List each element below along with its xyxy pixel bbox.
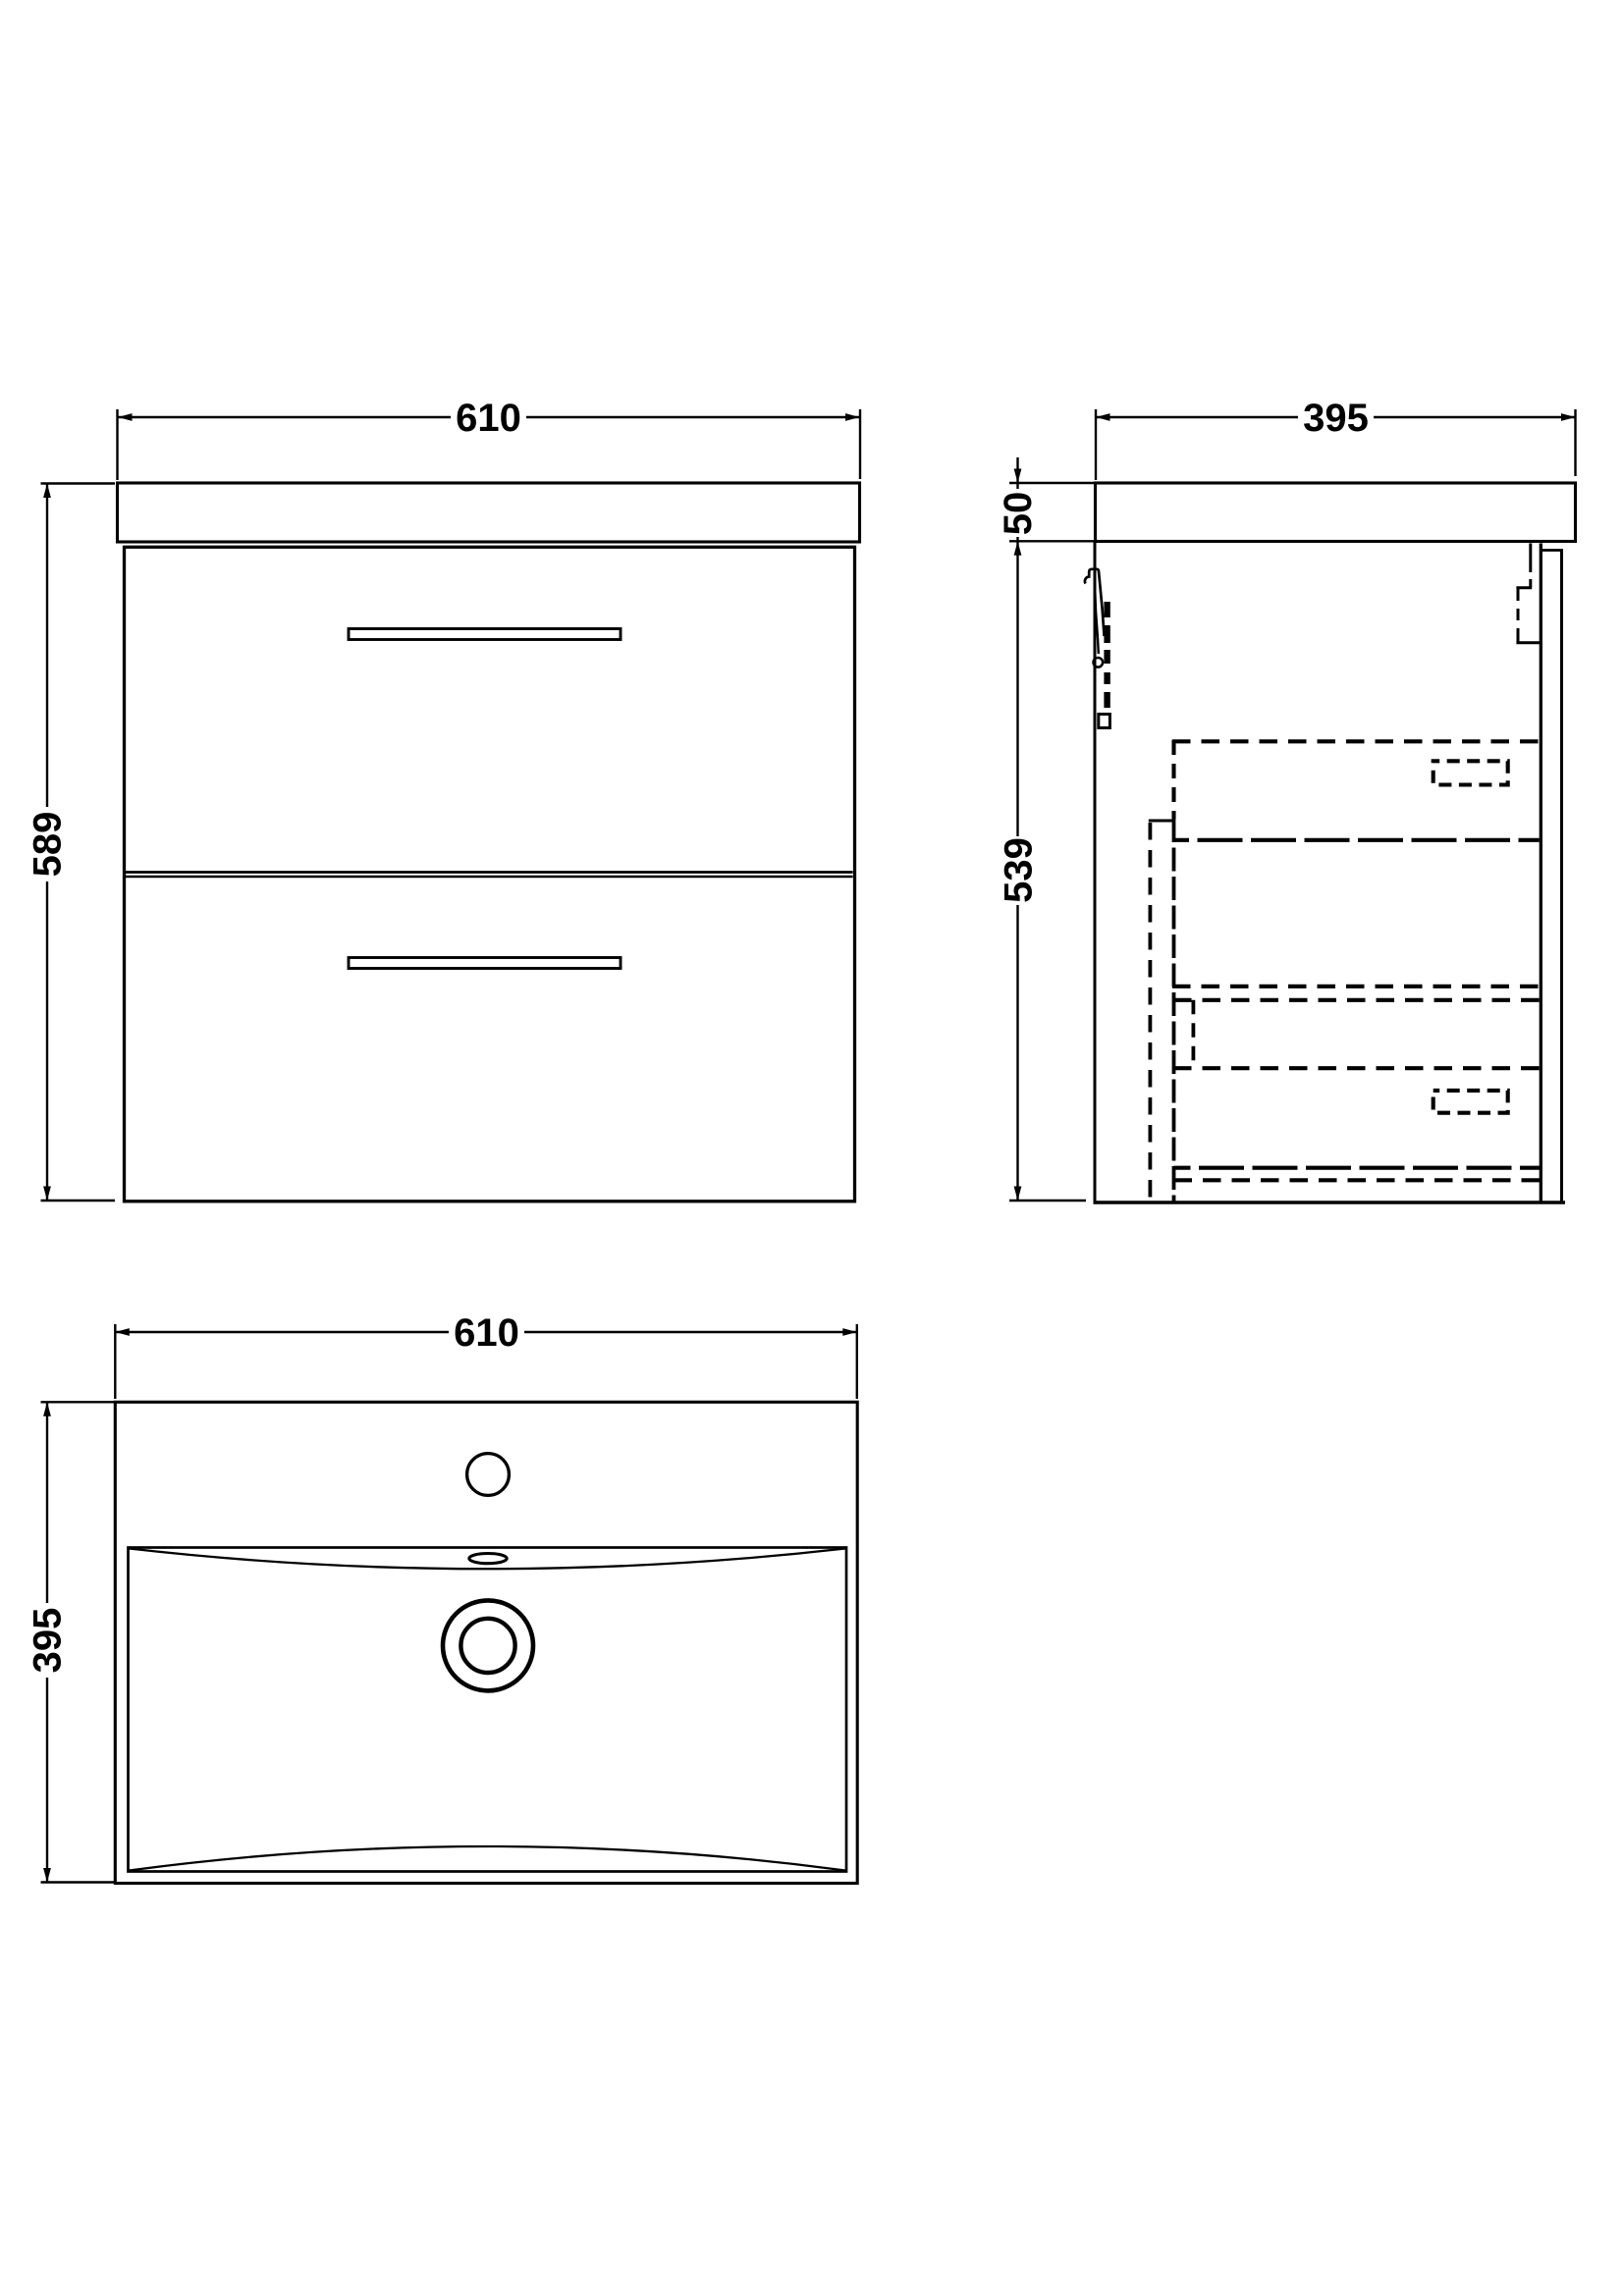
svg-text:589: 589 xyxy=(27,812,70,878)
svg-text:50: 50 xyxy=(997,492,1040,536)
svg-text:395: 395 xyxy=(1303,397,1369,440)
svg-text:395: 395 xyxy=(27,1608,70,1674)
svg-text:539: 539 xyxy=(998,837,1041,903)
svg-text:610: 610 xyxy=(456,397,521,440)
svg-text:610: 610 xyxy=(454,1311,519,1355)
